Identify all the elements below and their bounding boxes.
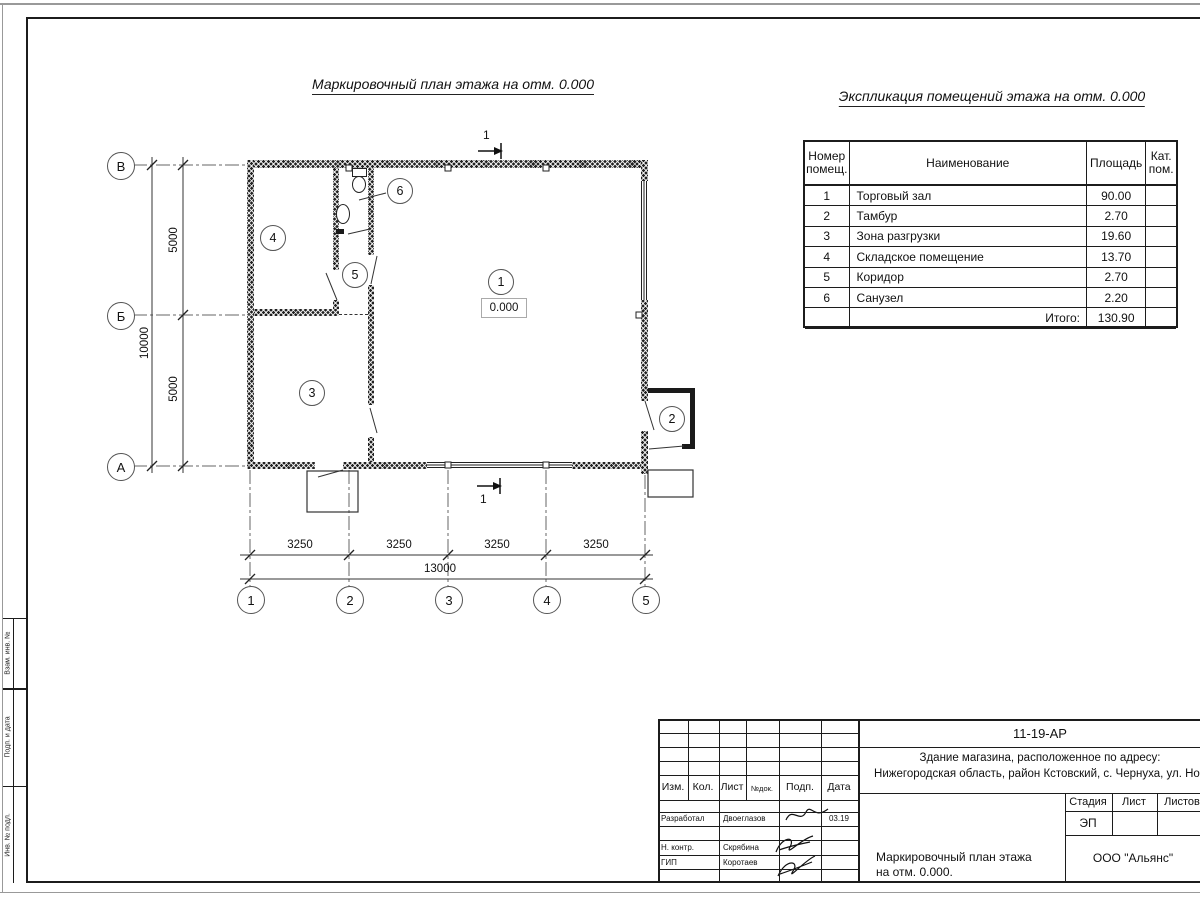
- room-area: 19.60: [1087, 227, 1146, 247]
- col-header-label: Наименование: [926, 157, 1009, 170]
- stamp-line: [688, 719, 689, 800]
- room-area: 2.70: [1087, 206, 1146, 226]
- dim-3250-4: 3250: [583, 539, 609, 551]
- room-name: Коридор: [850, 268, 1087, 288]
- stamp-line: [1065, 811, 1200, 812]
- grid-bubble-3: 3: [435, 586, 463, 614]
- dim-3250-3: 3250: [484, 539, 510, 551]
- grid-label: 2: [346, 593, 353, 608]
- stamp-doc-number: 11-19-АР: [1013, 726, 1067, 741]
- stamp-name-gip: Коротаев: [723, 858, 758, 867]
- stamp-sheet-label: Лист: [1122, 796, 1146, 808]
- room-mark-label: 3: [309, 386, 316, 400]
- grid-label: 5: [642, 593, 649, 608]
- room-name: Зона разгрузки: [850, 227, 1087, 247]
- room-mark-2: 2: [659, 406, 685, 432]
- grid-label: 1: [247, 593, 254, 608]
- dimension-lines: [152, 157, 653, 579]
- room-area: 90.00: [1087, 186, 1146, 206]
- stamp-col-podp: Подп.: [786, 781, 814, 793]
- room-cat: [1146, 268, 1176, 288]
- axis-bubble-a: А: [107, 453, 135, 481]
- axis-bubble-v: В: [107, 152, 135, 180]
- dim-10000: 10000: [139, 327, 151, 359]
- stamp-line: [719, 719, 720, 883]
- col-header-cat: Кат. пом.: [1146, 142, 1176, 186]
- room-area: 2.70: [1087, 268, 1146, 288]
- room-mark-label: 2: [669, 412, 676, 426]
- stamp-line: [658, 826, 858, 827]
- stamp-title-line2: на отм. 0.000.: [876, 865, 953, 879]
- stamp-date-developer: 03.19: [829, 814, 849, 823]
- stamp-name-ncontr: Скрябина: [723, 843, 759, 852]
- stamp-col-izm: Изм.: [662, 781, 685, 793]
- table-row: 2 Тамбур 2.70: [805, 206, 1176, 226]
- room-cat: [1146, 206, 1176, 226]
- axis-label: Б: [117, 309, 126, 324]
- plan-linework: [0, 0, 1200, 900]
- room-name: Складское помещение: [850, 247, 1087, 267]
- stamp-line: [658, 719, 660, 883]
- stamp-line: [1065, 835, 1200, 836]
- stamp-line: [658, 719, 1200, 721]
- stamp-line: [658, 812, 858, 813]
- table-row: 3 Зона разгрузки 19.60: [805, 227, 1176, 247]
- col-header-label: Площадь: [1090, 157, 1142, 170]
- total-value: 130.90: [1087, 308, 1146, 328]
- col-header-name: Наименование: [850, 142, 1087, 186]
- stamp-col-data: Дата: [827, 781, 850, 793]
- dimension-ticks: [147, 160, 650, 584]
- total-empty: [805, 308, 850, 328]
- grid-bubble-1: 1: [237, 586, 265, 614]
- table-row: 1 Торговый зал 90.00: [805, 186, 1176, 206]
- room-mark-label: 1: [498, 275, 505, 289]
- room-name: Торговый зал: [850, 186, 1087, 206]
- room-cat: [1146, 227, 1176, 247]
- room-area: 2.20: [1087, 288, 1146, 308]
- table-row: 4 Складское помещение 13.70: [805, 247, 1176, 267]
- axis-label: В: [117, 159, 126, 174]
- section-label-top: 1: [483, 128, 490, 142]
- room-number: 5: [805, 268, 850, 288]
- explication-table: Номер помещ. Наименование Площадь Кат. п…: [803, 140, 1178, 328]
- room-number: 1: [805, 186, 850, 206]
- dim-5000-top: 5000: [168, 227, 180, 253]
- room-cat: [1146, 247, 1176, 267]
- col-header-label: Номер помещ.: [805, 150, 849, 176]
- grid-bubble-4: 4: [533, 586, 561, 614]
- stamp-line: [746, 719, 747, 800]
- stamp-stage-value: ЭП: [1079, 816, 1096, 830]
- stamp-line: [1157, 793, 1158, 835]
- dim-3250-2: 3250: [386, 539, 412, 551]
- stamp-col-ndok: №док.: [751, 784, 773, 793]
- axis-bubble-b: Б: [107, 302, 135, 330]
- stamp-line: [658, 800, 858, 801]
- grid-bubble-5: 5: [632, 586, 660, 614]
- section-mark-top: [478, 143, 503, 159]
- stamp-line: [658, 747, 1200, 748]
- stamp-role-gip: ГИП: [661, 858, 677, 867]
- room-name: Санузел: [850, 288, 1087, 308]
- room-mark-5: 5: [342, 262, 368, 288]
- axis-dash-dot-lines: [133, 165, 645, 586]
- table-total-row: Итого: 130.90: [805, 308, 1176, 328]
- col-header-number: Номер помещ.: [805, 142, 850, 186]
- col-header-area: Площадь: [1087, 142, 1146, 186]
- stamp-line: [1065, 793, 1066, 883]
- grid-label: 4: [543, 593, 550, 608]
- stamp-address-line2: Нижегородская область, район Кстовский, …: [874, 768, 1200, 780]
- signature-ncontr: [776, 836, 813, 852]
- room-cat: [1146, 186, 1176, 206]
- col-header-label: Кат. пом.: [1146, 150, 1176, 176]
- stamp-line: [858, 793, 1200, 794]
- drawing-sheet: Взам. инв. № Подп. и дата Инв. № подл. М…: [0, 0, 1200, 900]
- room-number: 2: [805, 206, 850, 226]
- room-number: 4: [805, 247, 850, 267]
- stamp-line: [821, 719, 822, 883]
- stamp-sheets-label: Листов: [1164, 796, 1200, 808]
- total-label: Итого:: [850, 308, 1087, 328]
- stamp-company: ООО "Альянс": [1093, 851, 1173, 865]
- stamp-address-line1: Здание магазина, расположенное по адресу…: [920, 752, 1161, 764]
- dim-13000: 13000: [424, 563, 456, 575]
- stamp-line: [779, 719, 780, 883]
- stamp-line: [1112, 793, 1113, 835]
- stamp-title-line1: Маркировочный план этажа: [876, 850, 1032, 864]
- elevation-box: 0.000: [481, 298, 527, 318]
- stamp-line: [658, 855, 858, 856]
- room-mark-label: 6: [397, 184, 404, 198]
- dim-3250-1: 3250: [287, 539, 313, 551]
- stamp-name-developer: Двоеглазов: [723, 814, 766, 823]
- stamp-col-list: Лист: [721, 781, 744, 793]
- stamp-line: [858, 719, 860, 883]
- signature-gip: [778, 856, 815, 876]
- room-mark-4: 4: [260, 225, 286, 251]
- room-number: 3: [805, 227, 850, 247]
- stamp-role-developer: Разработал: [661, 814, 705, 823]
- table-header-row: Номер помещ. Наименование Площадь Кат. п…: [805, 142, 1176, 186]
- total-cat: [1146, 308, 1176, 328]
- elevation-value: 0.000: [490, 302, 519, 314]
- room-name: Тамбур: [850, 206, 1087, 226]
- room-number: 6: [805, 288, 850, 308]
- room-mark-3: 3: [299, 380, 325, 406]
- grid-label: 3: [445, 593, 452, 608]
- stamp-col-kol: Кол.: [693, 781, 714, 793]
- axis-label: А: [117, 460, 126, 475]
- room-mark-label: 5: [352, 268, 359, 282]
- room-cat: [1146, 288, 1176, 308]
- section-label-bottom: 1: [480, 492, 487, 506]
- leader-lines: [348, 193, 386, 234]
- stamp-line: [658, 869, 858, 870]
- stamp-line: [658, 840, 858, 841]
- dim-5000-bottom: 5000: [168, 376, 180, 402]
- table-row: 5 Коридор 2.70: [805, 268, 1176, 288]
- room-mark-label: 4: [270, 231, 277, 245]
- room-mark-6: 6: [387, 178, 413, 204]
- room-area: 13.70: [1087, 247, 1146, 267]
- grid-bubble-2: 2: [336, 586, 364, 614]
- room-mark-1: 1: [488, 269, 514, 295]
- table-row: 6 Санузел 2.20: [805, 288, 1176, 308]
- stamp-role-ncontr: Н. контр.: [661, 843, 694, 852]
- stamp-stage-label: Стадия: [1069, 796, 1107, 808]
